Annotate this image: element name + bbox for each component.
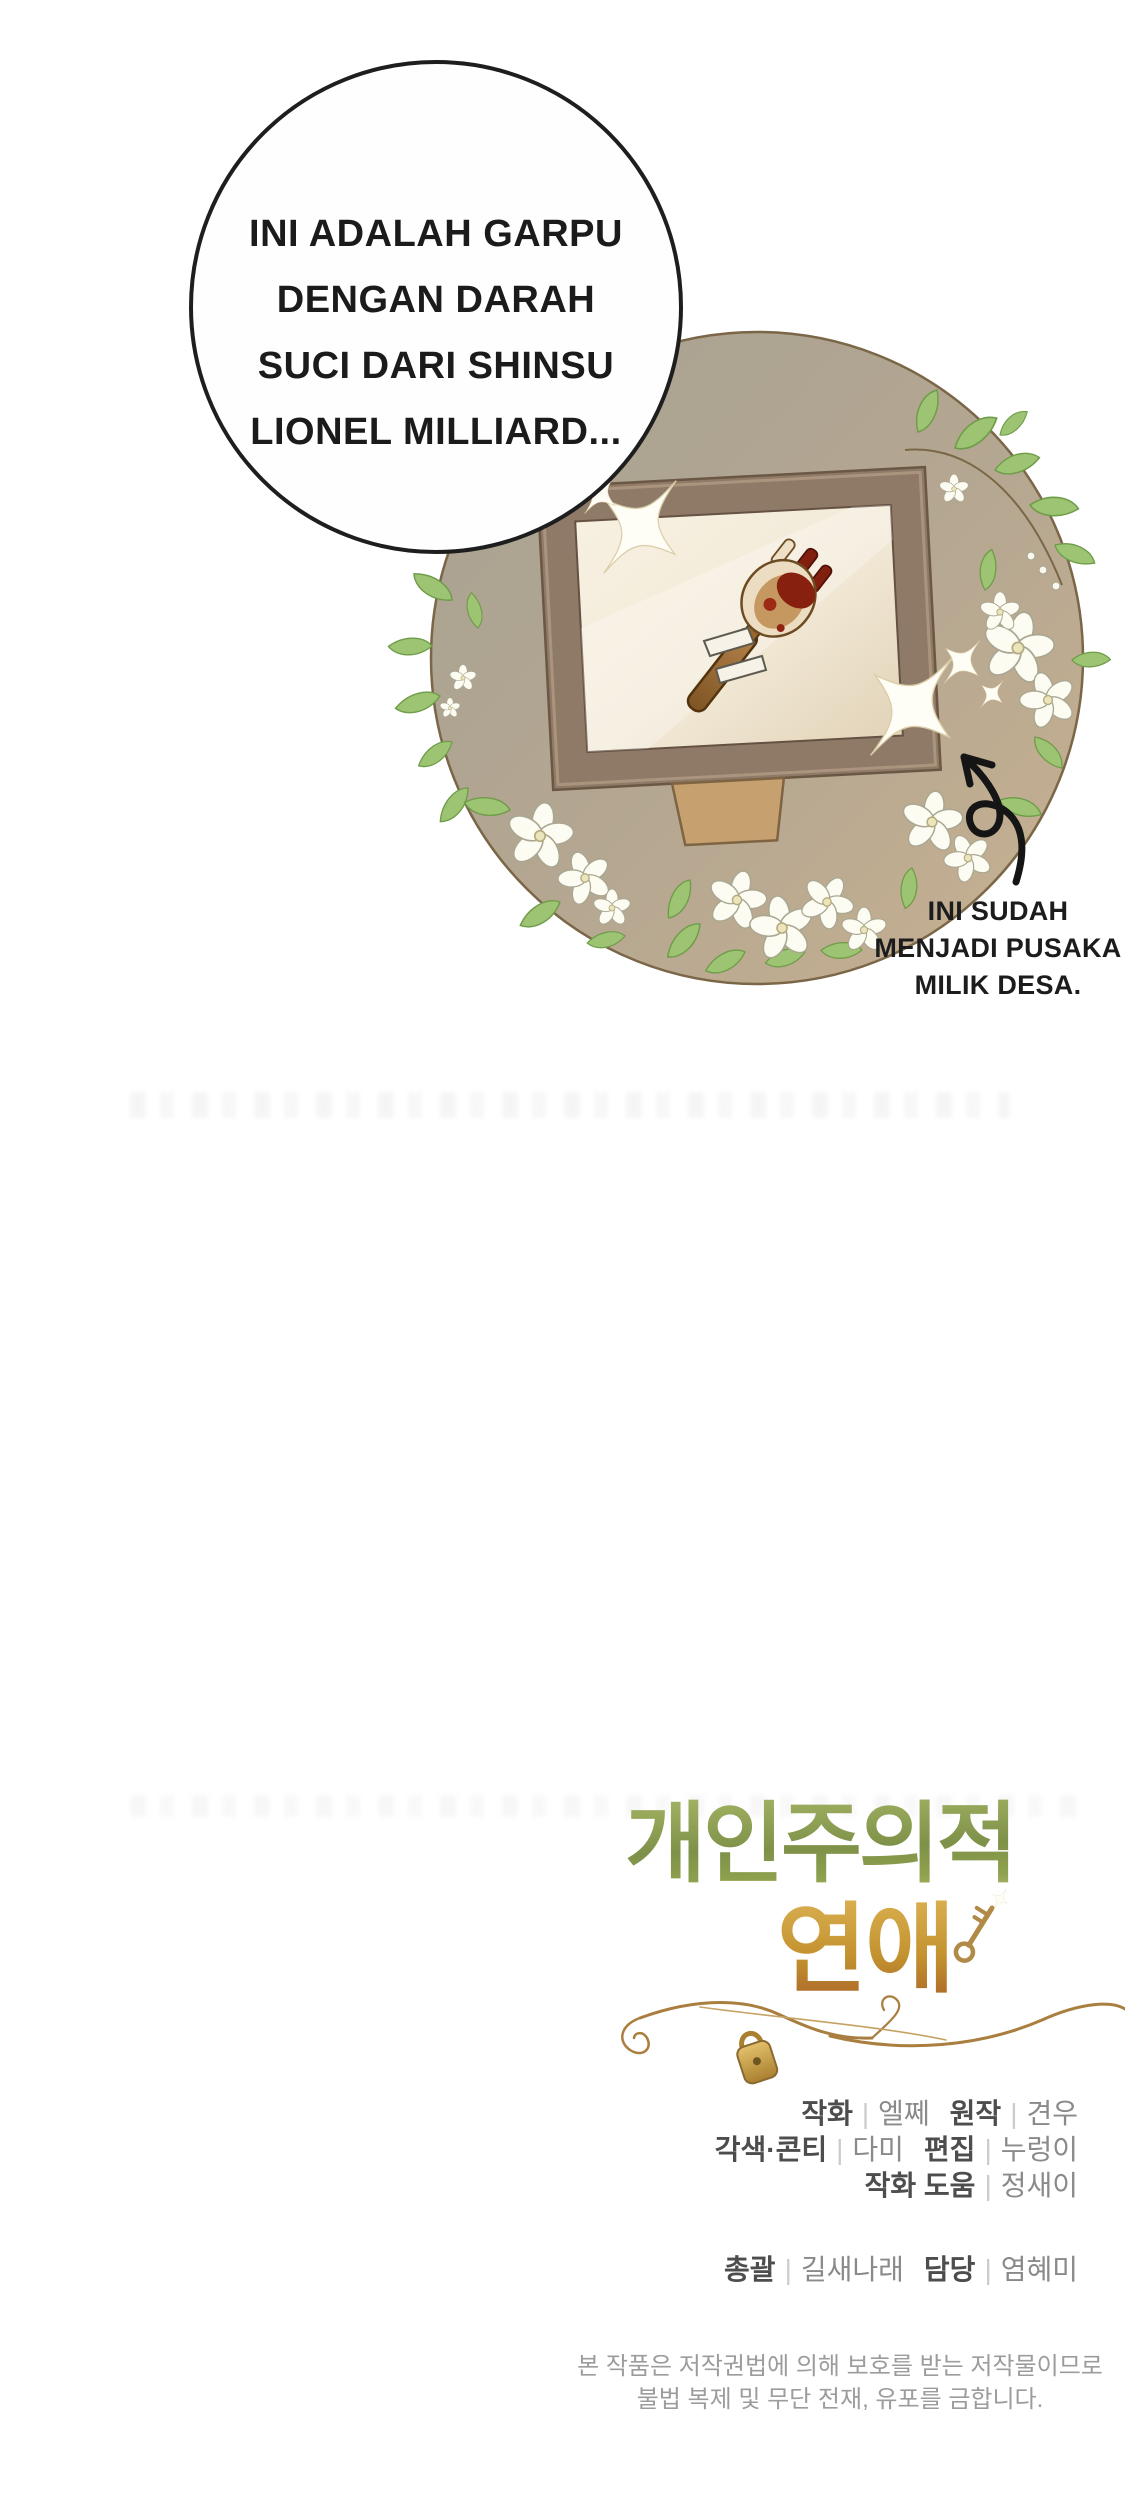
frame-stand xyxy=(672,778,787,846)
credits-row: 총괄|길새나래담당|염혜미 xyxy=(724,2252,1078,2288)
credit-separator: | xyxy=(975,2254,1000,2285)
caption-line: INI SUDAH xyxy=(873,893,1123,930)
staff-credits: 작화|엘쩨원작|견우 각색·콘티|다미편집|누렁이 작화 도움|정새이 xyxy=(715,2096,1078,2204)
padlock-icon xyxy=(732,2029,779,2086)
credit-separator: | xyxy=(975,2170,1000,2201)
credits-row: 작화|엘쩨원작|견우 xyxy=(715,2096,1078,2132)
speech-bubble-text: INI ADALAH GARPU DENGAN DARAH SUCI DARI … xyxy=(249,149,623,465)
speech-bubble: INI ADALAH GARPU DENGAN DARAH SUCI DARI … xyxy=(189,60,683,554)
credit-name: 다미 xyxy=(852,2134,904,2165)
credit-label: 총괄 xyxy=(724,2254,776,2285)
copyright-notice: 본 작품은 저작권법에 의해 보호를 받는 저작물이므로 불법 복제 및 무단 … xyxy=(540,2350,1125,2416)
series-title-line-1: 개인주의적 xyxy=(590,1792,1050,1899)
credit-name: 누렁이 xyxy=(1001,2134,1078,2165)
credit-separator: | xyxy=(776,2254,801,2285)
credit-label: 담당 xyxy=(924,2254,976,2285)
caption-line: MILIK DESA. xyxy=(873,967,1123,1004)
caption-line: MENJADI PUSAKA xyxy=(873,930,1123,967)
bubble-line: LIONEL MILLIARD... xyxy=(249,399,623,465)
series-title-line-2: 연애 xyxy=(735,1892,995,2010)
bubble-line: SUCI DARI SHINSU xyxy=(249,333,623,399)
credit-name: 견우 xyxy=(1026,2098,1078,2129)
credit-separator: | xyxy=(975,2134,1000,2165)
credit-name: 염혜미 xyxy=(1001,2254,1078,2285)
bubble-line: DENGAN DARAH xyxy=(249,267,623,333)
credit-separator: | xyxy=(827,2134,852,2165)
credit-name: 엘쩨 xyxy=(878,2098,930,2129)
credit-separator: | xyxy=(1001,2098,1026,2129)
credit-name: 정새이 xyxy=(1001,2170,1078,2201)
copyright-line: 본 작품은 저작권법에 의해 보호를 받는 저작물이므로 xyxy=(540,2350,1125,2383)
credit-label: 편집 xyxy=(924,2134,976,2165)
credit-label: 각색·콘티 xyxy=(715,2134,827,2165)
staff-credits-management: 총괄|길새나래담당|염혜미 xyxy=(724,2252,1078,2288)
credit-separator: | xyxy=(853,2098,878,2129)
credit-label: 원작 xyxy=(950,2098,1002,2129)
credit-label: 작화 xyxy=(801,2098,853,2129)
credit-label: 작화 도움 xyxy=(865,2170,976,2201)
credit-name: 길새나래 xyxy=(801,2254,904,2285)
credits-row: 각색·콘티|다미편집|누렁이 xyxy=(715,2132,1078,2168)
bubble-line: INI ADALAH GARPU xyxy=(249,201,623,267)
illustration-caption: INI SUDAH MENJADI PUSAKA MILIK DESA. xyxy=(873,893,1123,1004)
credits-row: 작화 도움|정새이 xyxy=(715,2168,1078,2204)
copyright-line: 불법 복제 및 무단 전재, 유포를 금합니다. xyxy=(540,2383,1125,2416)
